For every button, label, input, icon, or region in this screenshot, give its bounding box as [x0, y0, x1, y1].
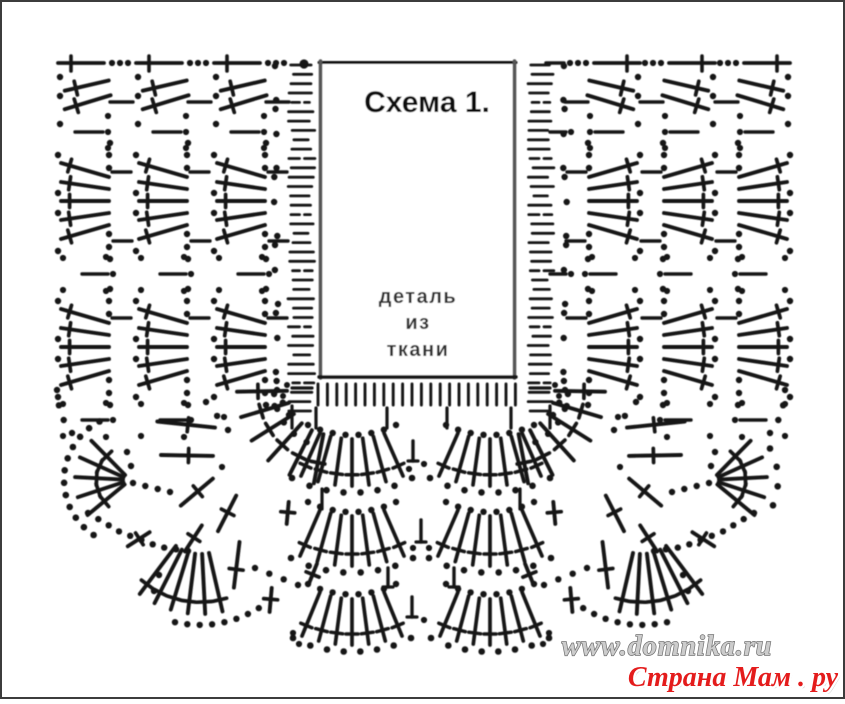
svg-text:ткани: ткани [387, 339, 450, 361]
svg-text:Схема 1.: Схема 1. [364, 86, 490, 119]
svg-text:Страна Мам . ру: Страна Мам . ру [628, 662, 839, 693]
svg-text:деталь: деталь [379, 286, 457, 308]
svg-text:www.domnika.ru: www.domnika.ru [562, 631, 773, 662]
svg-text:из: из [405, 312, 430, 334]
